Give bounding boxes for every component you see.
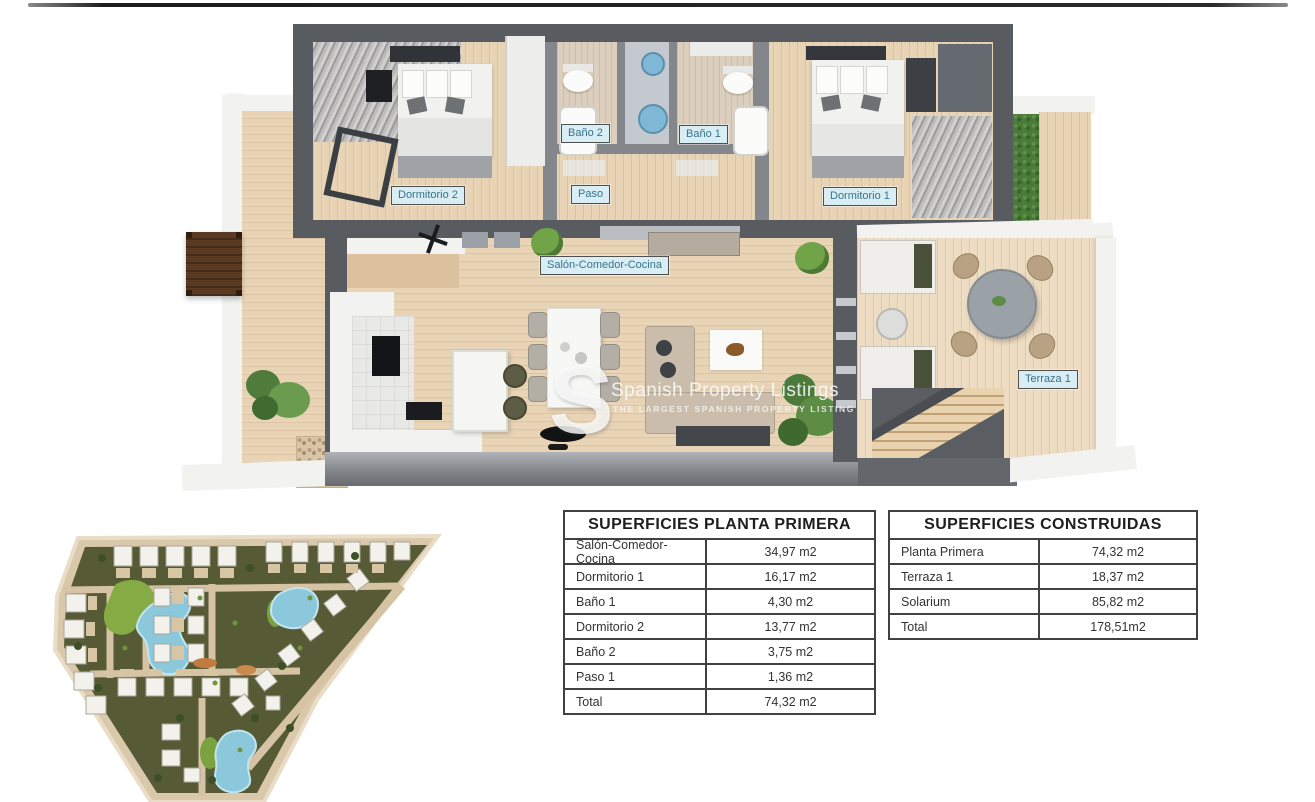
pillow	[866, 66, 888, 94]
row-label: Dormitorio 2	[565, 615, 707, 638]
headboard-shelf	[806, 46, 886, 60]
sideboard	[648, 232, 740, 256]
shower-fixture	[638, 104, 668, 134]
pillow	[840, 66, 864, 94]
room-label-terraza1: Terraza 1	[1018, 370, 1078, 389]
pergola-post	[186, 232, 192, 238]
tableware	[575, 352, 587, 364]
garden-deck	[1039, 112, 1091, 232]
dog	[726, 343, 744, 356]
table-row: Paso 1 1,36 m2	[565, 665, 874, 690]
window-glass	[938, 44, 992, 112]
pillow	[426, 70, 448, 98]
dining-chair	[528, 344, 548, 370]
tv-bench	[676, 426, 770, 446]
plant	[531, 228, 563, 258]
wardrobe	[505, 36, 545, 166]
lounger-cushion	[914, 244, 932, 288]
nightstand	[366, 70, 392, 102]
table-row: Baño 1 4,30 m2	[565, 590, 874, 615]
pillow	[402, 70, 424, 98]
cushion	[445, 97, 465, 115]
table-centerpiece	[992, 296, 1006, 306]
table-row: Total 74,32 m2	[565, 690, 874, 713]
row-value: 74,32 m2	[1040, 540, 1196, 563]
vanity-counter	[690, 42, 752, 56]
cooktop	[372, 336, 400, 376]
pergola	[186, 232, 242, 296]
row-label: Terraza 1	[890, 565, 1040, 588]
table-row: Dormitorio 2 13,77 m2	[565, 615, 874, 640]
row-label: Paso 1	[565, 665, 707, 688]
row-value: 18,37 m2	[1040, 565, 1196, 588]
pendant-lamp	[503, 364, 527, 388]
row-value: 4,30 m2	[707, 590, 874, 613]
partition-wall	[543, 152, 557, 220]
room-label-bano2: Baño 2	[561, 124, 610, 143]
staircase	[872, 388, 1004, 462]
row-value: 16,17 m2	[707, 565, 874, 588]
outer-wall-left	[293, 24, 313, 238]
table-row: Dormitorio 1 16,17 m2	[565, 565, 874, 590]
bed-blanket	[398, 118, 492, 156]
table-body: Salón-Comedor-Cocina 34,97 m2 Dormitorio…	[565, 540, 874, 713]
surfaces-table-construidas: SUPERFICIES CONSTRUIDAS Planta Primera 7…	[888, 510, 1198, 640]
pergola-post	[236, 290, 242, 296]
row-value: 13,77 m2	[707, 615, 874, 638]
row-value: 1,36 m2	[707, 665, 874, 688]
hedge	[1013, 114, 1039, 230]
kitchen-island	[452, 350, 508, 432]
room-label-dormitorio2: Dormitorio 2	[391, 186, 465, 205]
outer-wall-top	[293, 24, 1013, 42]
shelf-rung	[836, 332, 856, 340]
shower-fixture	[641, 52, 665, 76]
dining-table	[547, 308, 601, 408]
site-plan	[50, 528, 452, 802]
row-label: Baño 1	[565, 590, 707, 613]
bed-foot-bench	[812, 156, 904, 178]
row-label: Dormitorio 1	[565, 565, 707, 588]
partition-wall	[669, 42, 677, 152]
sofa-cushion	[660, 362, 676, 378]
pillow	[816, 66, 838, 94]
row-label: Baño 2	[565, 640, 707, 663]
room-label-paso: Paso	[571, 185, 610, 204]
headboard-shelf	[390, 46, 460, 62]
dining-chair	[528, 376, 548, 402]
dining-chair	[600, 376, 620, 402]
partition-wall	[755, 152, 769, 220]
dining-chair	[600, 344, 620, 370]
wardrobe	[906, 58, 936, 112]
surfaces-table-planta-primera: SUPERFICIES PLANTA PRIMERA Salón-Comedor…	[563, 510, 876, 715]
room-label-dormitorio1: Dormitorio 1	[823, 187, 897, 206]
pergola-post	[186, 290, 192, 296]
window-blinds	[912, 116, 992, 218]
desk-mat	[462, 232, 488, 248]
partition-wall	[543, 42, 557, 152]
row-label: Total	[890, 615, 1040, 638]
row-value: 34,97 m2	[707, 540, 874, 563]
play-area	[193, 658, 217, 668]
row-value: 3,75 m2	[707, 640, 874, 663]
robot-vacuum	[540, 426, 586, 442]
dining-chair	[600, 312, 620, 338]
play-area	[236, 665, 256, 675]
plant	[252, 396, 278, 420]
table-row: Terraza 1 18,37 m2	[890, 565, 1196, 590]
row-label: Total	[565, 690, 707, 713]
pillow	[450, 70, 472, 98]
table-title: SUPERFICIES CONSTRUIDAS	[890, 512, 1196, 540]
toilet	[563, 70, 593, 92]
bed-foot-bench	[398, 156, 492, 178]
row-value: 85,82 m2	[1040, 590, 1196, 613]
kitchen-worktop	[347, 254, 459, 288]
table-row: Total 178,51m2	[890, 615, 1196, 638]
section-cut-wall	[858, 458, 1010, 486]
table-title: SUPERFICIES PLANTA PRIMERA	[565, 512, 874, 540]
room-label-salon: Salón-Comedor-Cocina	[540, 256, 669, 275]
partition-wall	[617, 42, 625, 152]
shelf-rung	[836, 400, 856, 408]
row-value: 178,51m2	[1040, 615, 1196, 638]
row-label: Planta Primera	[890, 540, 1040, 563]
desk-mat	[494, 232, 520, 248]
remote	[548, 444, 568, 450]
sofa-cushion	[656, 340, 672, 356]
toilet	[723, 72, 753, 94]
table-row: Solarium 85,82 m2	[890, 590, 1196, 615]
row-label: Solarium	[890, 590, 1040, 613]
tableware	[560, 342, 570, 352]
pendant-lamp	[503, 396, 527, 420]
outer-wall-right	[993, 24, 1013, 238]
table-row: Planta Primera 74,32 m2	[890, 540, 1196, 565]
ceiling-light	[676, 160, 718, 176]
dining-chair	[528, 312, 548, 338]
ceiling-light	[563, 160, 605, 176]
parapet-wall	[1096, 238, 1116, 464]
sink-unit	[406, 402, 442, 420]
bathtub	[733, 106, 769, 156]
table-body: Planta Primera 74,32 m2 Terraza 1 18,37 …	[890, 540, 1196, 638]
plant	[778, 418, 808, 446]
terrace-divider-wall	[833, 238, 859, 462]
row-value: 74,32 m2	[707, 690, 874, 713]
table-row: Baño 2 3,75 m2	[565, 640, 874, 665]
row-label: Salón-Comedor-Cocina	[565, 540, 707, 563]
room-label-bano1: Baño 1	[679, 125, 728, 144]
table-row: Salón-Comedor-Cocina 34,97 m2	[565, 540, 874, 565]
plant	[795, 242, 829, 274]
pergola-post	[236, 232, 242, 238]
shelf-rung	[836, 298, 856, 306]
bed-blanket	[812, 124, 904, 156]
shelf-rung	[836, 366, 856, 374]
side-table	[876, 308, 908, 340]
kitchen-counter-top	[347, 238, 465, 254]
